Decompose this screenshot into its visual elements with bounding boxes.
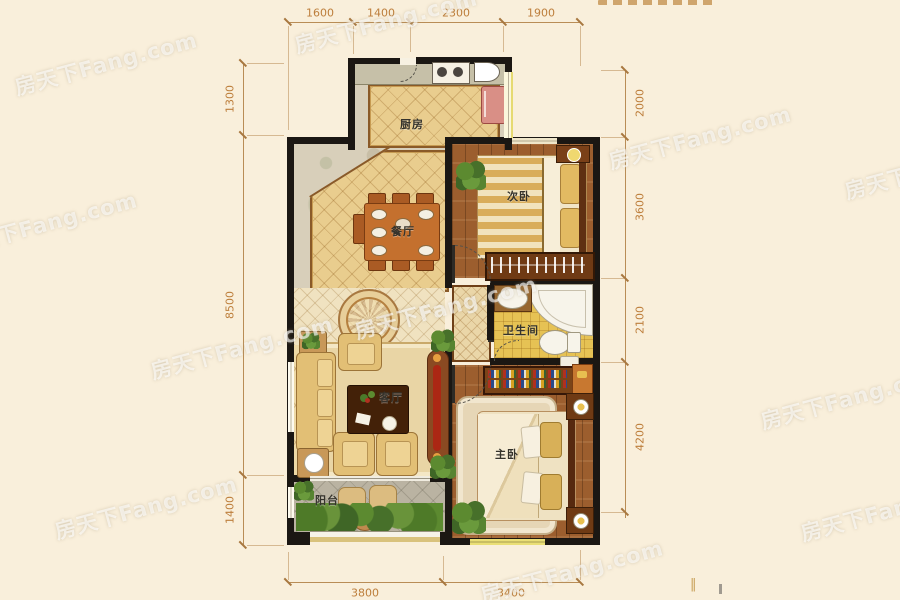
- extension-line: [601, 278, 625, 279]
- dimension-label: 1400: [367, 7, 395, 20]
- extension-line: [247, 135, 284, 136]
- armchair: [376, 432, 418, 476]
- pillow: [560, 164, 581, 204]
- footer-marks: ‖: [690, 577, 697, 592]
- extension-line: [247, 545, 284, 546]
- paper-icon: [355, 413, 371, 426]
- pillow: [560, 208, 581, 248]
- room-label-dining: 餐厅: [391, 223, 415, 239]
- armchair-cushion: [347, 343, 375, 365]
- extension-line: [580, 26, 581, 66]
- room-label-kitchen: 厨房: [400, 116, 424, 132]
- plant-icon: [456, 160, 486, 192]
- room-label-living: 客厅: [379, 389, 403, 405]
- lamp-icon: [567, 148, 581, 162]
- flower-icon: [368, 391, 375, 398]
- room-label-balcony: 阳台: [315, 492, 339, 508]
- dimension-line-top: [288, 22, 580, 23]
- plate-icon: [418, 209, 434, 220]
- dimension-label: 1900: [527, 7, 555, 20]
- nightstand: [566, 393, 594, 420]
- lamp-icon: [304, 453, 324, 473]
- kitchen-window-accent: [511, 72, 513, 138]
- bedroom2-window: [512, 138, 557, 144]
- cabinet-item: [577, 371, 587, 378]
- bed-blanket: [478, 158, 544, 255]
- dimension-label: 1300: [224, 85, 237, 113]
- master-door-leaf: [452, 365, 455, 403]
- armchair: [338, 333, 382, 371]
- room-label-bedroom2: 次卧: [507, 188, 531, 204]
- floorplan-canvas: 房天下Fang.com 房天下Fang.com 房天下Fang.com 房天下F…: [0, 0, 900, 600]
- plant-icon: [430, 454, 456, 480]
- lamp-icon: [573, 513, 589, 529]
- tv-console-panel: [433, 365, 441, 451]
- tv-console: [427, 350, 449, 466]
- extension-line: [288, 552, 289, 580]
- plant-icon: [431, 329, 455, 353]
- sofa-cushion: [317, 389, 333, 417]
- dimension-line-bottom: [288, 582, 580, 583]
- sofa: [296, 352, 336, 452]
- hanger-rack: [491, 257, 585, 273]
- kitchen-stove: [432, 62, 470, 84]
- wash-basin: [497, 288, 528, 309]
- extension-line: [247, 475, 284, 476]
- extension-line: [247, 63, 284, 64]
- dimension-label: 2300: [442, 7, 470, 20]
- footer-tick: [719, 584, 722, 594]
- plate-icon: [382, 416, 397, 431]
- room-label-bathroom: 卫生间: [503, 322, 539, 338]
- headboard: [568, 412, 575, 520]
- wardrobe: [485, 252, 595, 281]
- entry-door-opening: [400, 58, 416, 65]
- balcony-sliding-door: [310, 476, 430, 481]
- books-row: [488, 380, 567, 388]
- watermark: 房天下Fang.com: [0, 184, 141, 262]
- armchair: [333, 432, 375, 476]
- wall-segment: [487, 285, 494, 340]
- knob-icon: [433, 354, 441, 362]
- nightstand: [556, 145, 590, 163]
- floor-vestibule-tile: [452, 285, 491, 362]
- extension-line: [601, 70, 625, 71]
- plant-icon: [302, 332, 320, 350]
- living-window: [288, 362, 294, 432]
- dimension-label: 1600: [306, 7, 334, 20]
- extension-line: [288, 26, 289, 130]
- plant-icon: [294, 480, 314, 502]
- balcony-post: [440, 532, 452, 545]
- refrigerator: [481, 86, 506, 124]
- dimension-label: 4200: [634, 423, 647, 451]
- extension-line: [580, 550, 581, 580]
- flower-icon: [365, 398, 370, 403]
- balcony-post: [287, 532, 310, 545]
- lamp-table: [297, 448, 329, 478]
- pillow: [540, 474, 562, 510]
- wall-segment: [593, 137, 600, 545]
- bed-sheet: [544, 158, 560, 255]
- pillow: [540, 422, 562, 458]
- sofa-cushion: [317, 359, 333, 387]
- plant-icon: [452, 500, 486, 536]
- watermark: 房天下Fang.com: [11, 24, 200, 102]
- burner-icon: [453, 67, 463, 77]
- plate-icon: [371, 227, 387, 238]
- extension-line: [353, 26, 354, 54]
- books-row: [488, 370, 567, 378]
- cabinet: [572, 364, 593, 395]
- burner-icon: [437, 67, 447, 77]
- watermark: 房天下Fang.com: [51, 468, 240, 546]
- balcony-railing-tan: [310, 537, 440, 542]
- kitchen-sink: [474, 62, 500, 82]
- extension-line: [601, 362, 625, 363]
- watermark: 房天下Fang.com: [797, 470, 900, 548]
- armchair-cushion: [385, 441, 411, 467]
- room-label-master: 主卧: [495, 446, 519, 462]
- armchair-cushion: [342, 441, 368, 467]
- bedroom2-door-leaf: [452, 245, 455, 283]
- extension-line: [503, 26, 504, 52]
- dimension-label: 3800: [351, 587, 379, 600]
- dimension-label: 8500: [224, 291, 237, 319]
- refrigerator-handle: [484, 91, 486, 117]
- dimension-label: 2000: [634, 89, 647, 117]
- extension-line: [443, 556, 444, 580]
- plate-icon: [371, 245, 387, 256]
- dimension-label: 2100: [634, 306, 647, 334]
- toilet-tank: [567, 332, 581, 353]
- headboard: [579, 156, 586, 258]
- extension-line: [601, 512, 625, 513]
- plate-icon: [418, 245, 434, 256]
- bookshelf: [483, 366, 576, 395]
- watermark: 房天下Fang.com: [841, 128, 900, 206]
- bed: [477, 411, 576, 521]
- extension-line: [601, 137, 625, 138]
- wall-segment: [287, 137, 350, 144]
- watermark: 房天下Fang.com: [757, 358, 900, 436]
- bed: [477, 155, 587, 259]
- wall-segment: [445, 144, 452, 288]
- dimension-label: 3400: [497, 587, 525, 600]
- nightstand: [566, 507, 594, 534]
- dimension-label: 1400: [224, 496, 237, 524]
- master-window: [470, 539, 545, 545]
- cropped-logo-fragment: [598, 0, 716, 5]
- sofa-cushion: [317, 419, 333, 447]
- bathroom-door-leaf: [488, 340, 494, 342]
- wall-segment: [287, 137, 294, 545]
- plate-icon: [371, 209, 387, 220]
- lamp-icon: [573, 399, 589, 415]
- extension-line: [410, 26, 411, 52]
- dimension-label: 3600: [634, 193, 647, 221]
